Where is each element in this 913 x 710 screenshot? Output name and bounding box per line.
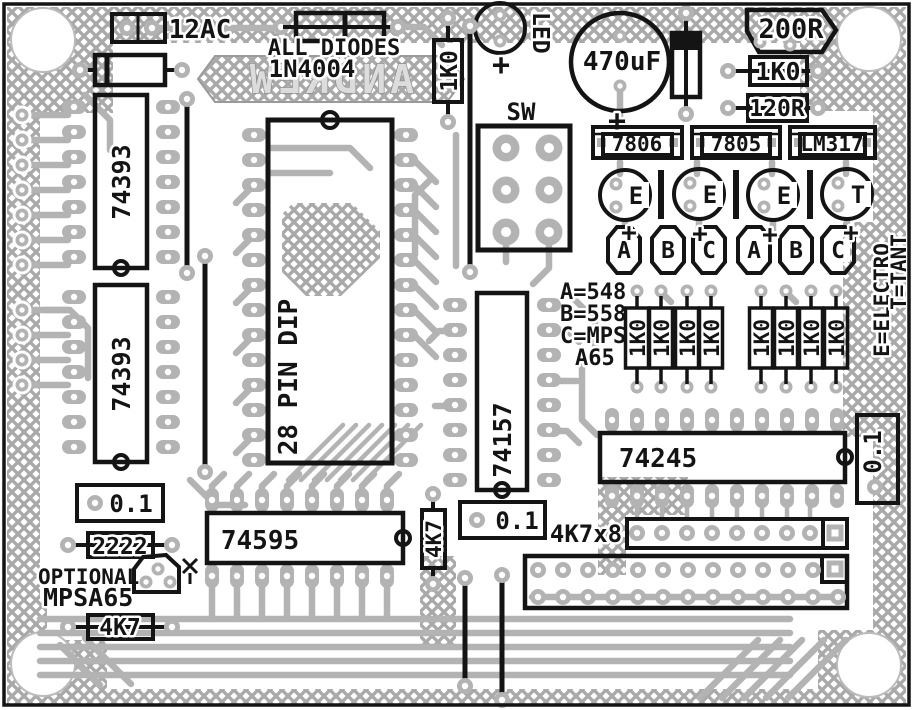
bank-resistor-label: 1K0 <box>650 319 674 357</box>
cap-code: E <box>629 182 643 210</box>
label-4k7-v: 4K7 <box>422 520 446 558</box>
label-01-left: 0.1 <box>109 490 152 518</box>
transistor-code: A <box>747 238 761 264</box>
led-polarity-plus: + <box>492 48 510 83</box>
label-1k0-h: 1K0 <box>755 57 800 86</box>
bank-resistor-label: 1K0 <box>626 319 650 357</box>
label-lm317: LM317 <box>800 132 863 156</box>
polarity-plus: + <box>692 219 708 249</box>
label-7806: 7806 <box>612 132 663 156</box>
transistor-code: B <box>661 238 675 264</box>
pcb-board: ANDREW <box>0 0 913 710</box>
cap-code: E <box>777 182 791 210</box>
label-12ac: 12AC <box>169 15 232 45</box>
transistor-code: B <box>789 238 803 264</box>
polarity-plus: + <box>762 220 778 250</box>
label-01-mid: 0.1 <box>495 507 538 535</box>
label-120r: 120R <box>749 96 805 122</box>
label-sw: SW <box>507 98 536 126</box>
bank-resistor-label: 1K0 <box>700 319 724 357</box>
label-01-right: 0.1 <box>859 430 887 473</box>
legend-c2: A65 <box>575 346 615 371</box>
bank-resistor-label: 1K0 <box>676 319 700 357</box>
regulator-lm317: LM317 <box>790 127 875 158</box>
polarity-plus: + <box>843 218 859 248</box>
label-74393-2: 74393 <box>107 336 136 411</box>
label-200r: 200R <box>758 14 824 45</box>
mounting-hole <box>11 8 75 72</box>
label-4k7x8: 4K7x8 <box>550 520 622 548</box>
label-mpsa65: MPSA65 <box>43 583 133 612</box>
polarity-plus: + <box>621 218 637 248</box>
label-2222: 2222 <box>92 534 147 560</box>
pcb-screenshot: ANDREW <box>0 0 913 710</box>
label-1n4004: 1N4004 <box>269 55 356 83</box>
bank-resistor-label: 1K0 <box>800 319 824 357</box>
cap-code: E <box>703 181 717 209</box>
bank-resistor-label: 1K0 <box>750 319 774 357</box>
label-470uf: 470uF <box>583 47 661 77</box>
label-4k7-bl: 4K7 <box>99 615 141 641</box>
bank-resistor-label: 1K0 <box>775 319 799 357</box>
mounting-hole <box>837 7 901 71</box>
optional-transistor-note: OPTIONAL MPSA65 <box>38 565 139 612</box>
bank-resistor-label: 1K0 <box>825 319 849 357</box>
label-7805: 7805 <box>711 132 762 156</box>
label-74157: 74157 <box>488 402 517 477</box>
label-1k0-vertical: 1K0 <box>437 50 463 92</box>
label-74595: 74595 <box>221 526 299 556</box>
label-28-pin-dip: 28 PIN DIP <box>274 299 304 456</box>
label-74393-1: 74393 <box>107 144 136 219</box>
label-74245: 74245 <box>619 444 697 474</box>
cap-code: T <box>851 181 865 209</box>
label-led: LED <box>527 12 553 54</box>
